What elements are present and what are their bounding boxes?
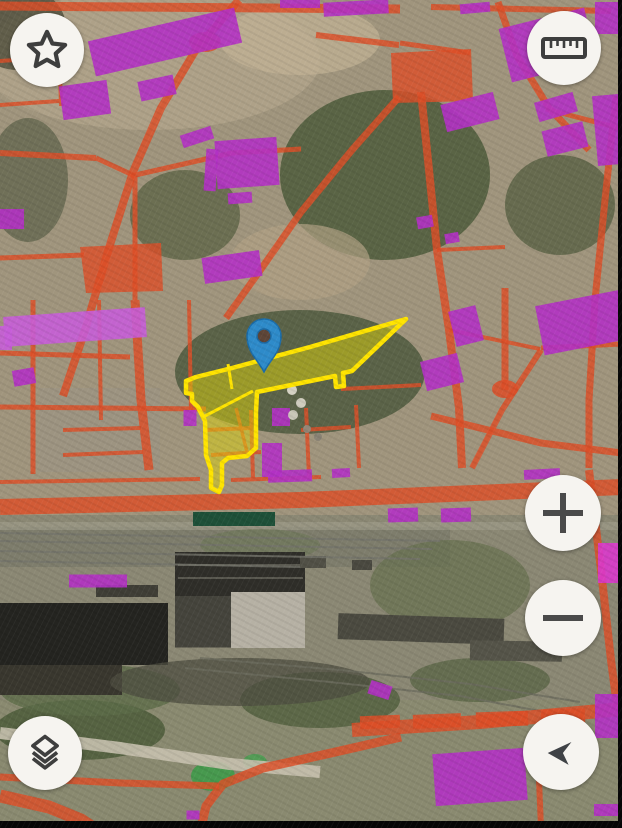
zoom-in-button[interactable] (525, 475, 601, 551)
plus-icon (540, 490, 586, 536)
compass-button[interactable] (523, 714, 599, 790)
layers-button[interactable] (8, 716, 82, 790)
map-view[interactable] (0, 0, 622, 828)
layers-icon (23, 731, 67, 775)
ground-layer (0, 0, 622, 828)
measure-button[interactable] (527, 11, 601, 85)
ruler-icon (539, 23, 589, 73)
minus-icon (540, 595, 586, 641)
map-pin-hole (257, 329, 271, 343)
navigation-arrow-icon (542, 733, 580, 771)
map-canvas[interactable] (0, 0, 622, 828)
zoom-out-button[interactable] (525, 580, 601, 656)
star-icon (25, 28, 69, 72)
favorite-button[interactable] (10, 13, 84, 87)
